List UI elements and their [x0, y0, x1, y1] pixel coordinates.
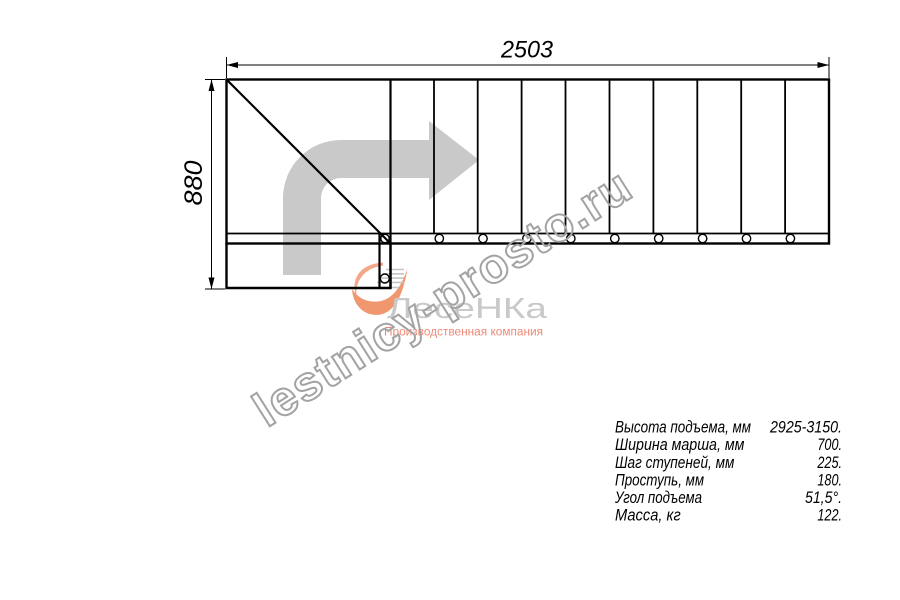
- svg-text:Ширина марша, мм: Ширина марша, мм: [615, 436, 744, 454]
- svg-text:51,5°.: 51,5°.: [805, 489, 842, 507]
- svg-text:Угол подъема: Угол подъема: [614, 489, 702, 507]
- svg-text:2925-3150.: 2925-3150.: [769, 419, 842, 437]
- svg-text:2503: 2503: [500, 37, 553, 64]
- svg-text:Масса, кг: Масса, кг: [615, 507, 681, 525]
- svg-text:880: 880: [180, 160, 208, 205]
- svg-text:122.: 122.: [817, 507, 842, 525]
- svg-text:Проступь, мм: Проступь, мм: [615, 471, 704, 489]
- svg-text:700.: 700.: [817, 436, 842, 454]
- svg-text:Шаг ступеней, мм: Шаг ступеней, мм: [615, 454, 734, 472]
- svg-text:225.: 225.: [817, 454, 842, 472]
- svg-text:Высота подъема, мм: Высота подъема, мм: [615, 419, 751, 437]
- svg-text:180.: 180.: [817, 471, 842, 489]
